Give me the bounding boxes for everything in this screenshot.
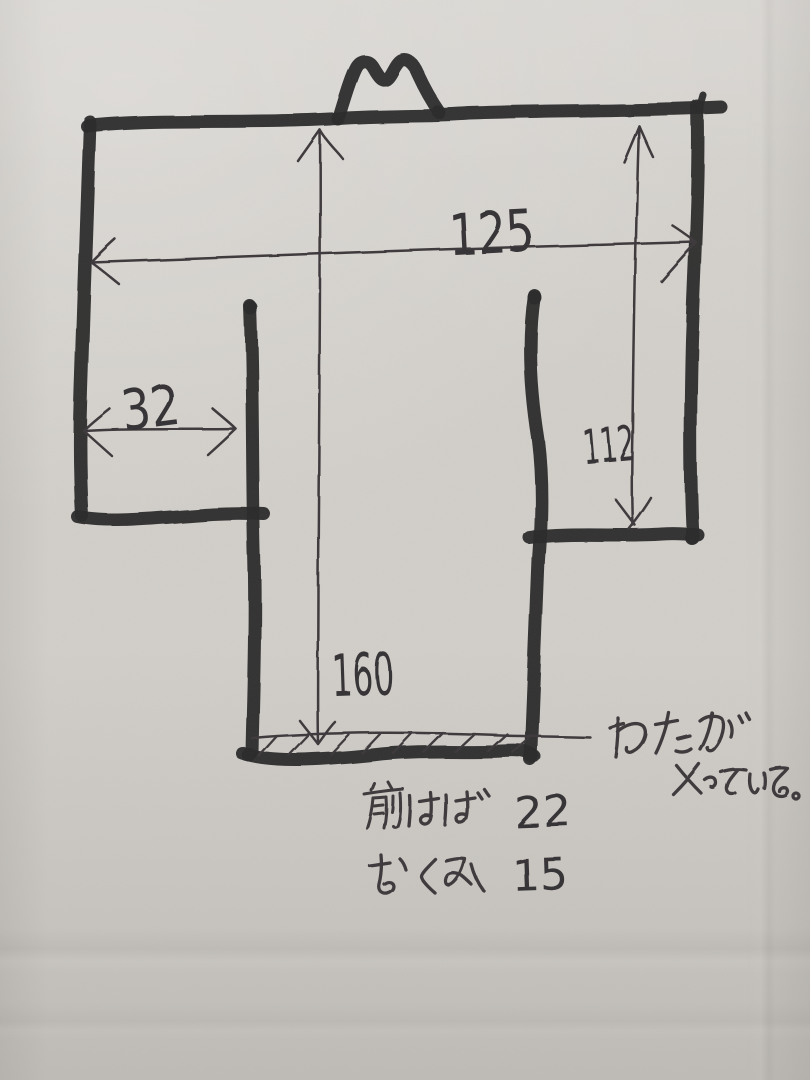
kimono-measurement-diagram: 125 160 112 32: [0, 0, 810, 1080]
photo-paper-kimono-sketch: 125 160 112 32: [0, 0, 810, 1080]
paper-grain-texture: [0, 0, 810, 1080]
